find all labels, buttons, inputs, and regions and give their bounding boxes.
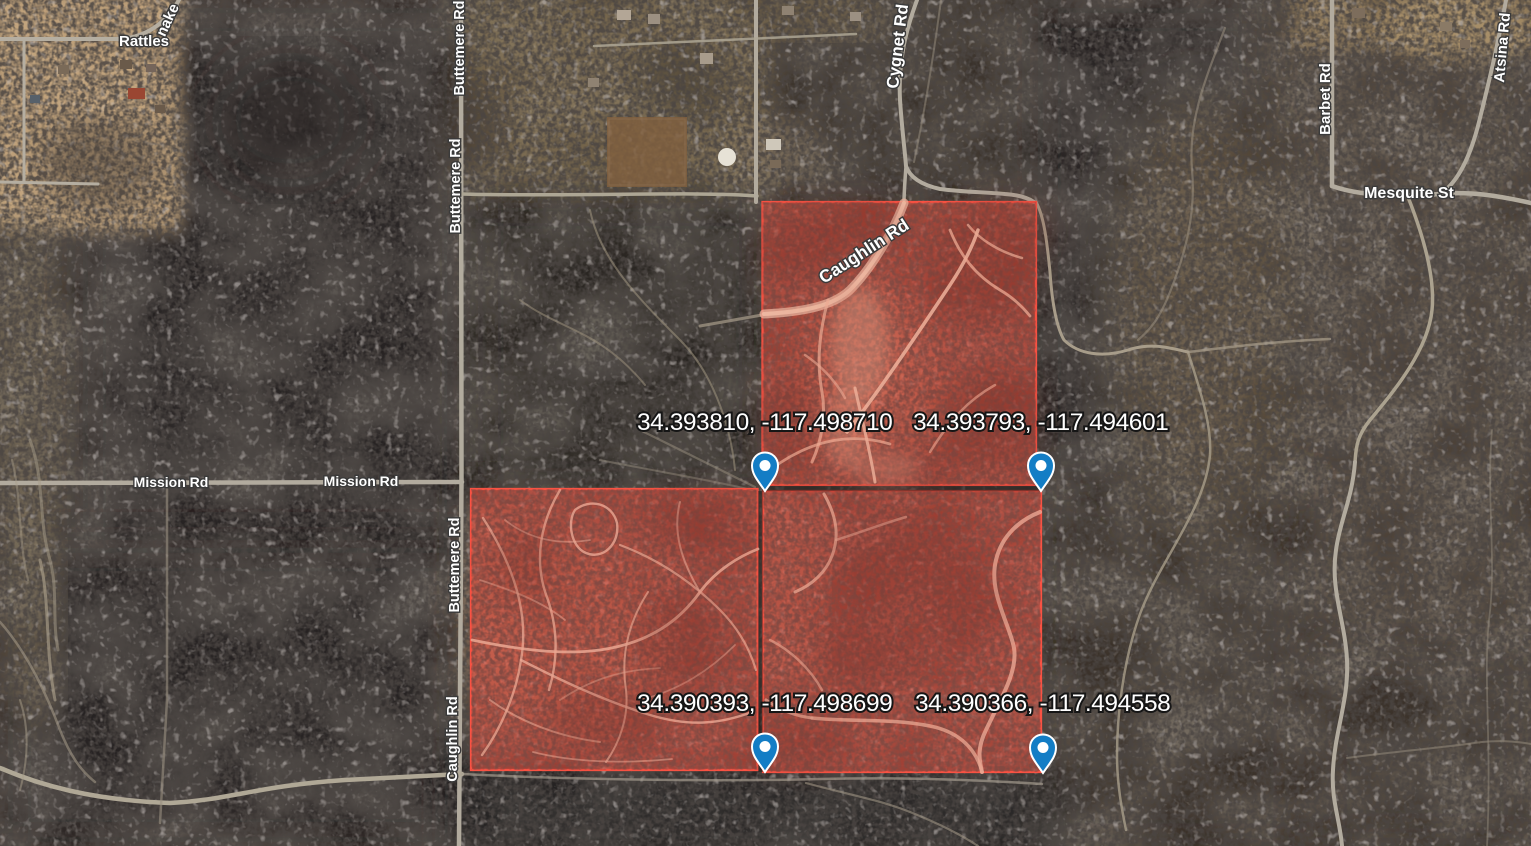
svg-text:34.390393, -117.498699: 34.390393, -117.498699 <box>637 690 892 717</box>
svg-text:Mission Rd: Mission Rd <box>134 474 209 490</box>
svg-text:Buttemere Rd: Buttemere Rd <box>448 138 464 233</box>
svg-text:Caughlin Rd: Caughlin Rd <box>445 696 461 781</box>
svg-text:Mission Rd: Mission Rd <box>324 473 399 489</box>
svg-text:34.393810, -117.498710: 34.393810, -117.498710 <box>637 409 892 436</box>
svg-text:34.390366, -117.494558: 34.390366, -117.494558 <box>915 690 1170 717</box>
svg-text:34.393793, -117.494601: 34.393793, -117.494601 <box>913 409 1168 436</box>
svg-text:Buttemere Rd: Buttemere Rd <box>452 0 468 95</box>
svg-text:Buttemere Rd: Buttemere Rd <box>447 517 463 612</box>
svg-text:Mesquite St: Mesquite St <box>1364 185 1454 202</box>
svg-text:Barbet Rd: Barbet Rd <box>1317 63 1334 135</box>
